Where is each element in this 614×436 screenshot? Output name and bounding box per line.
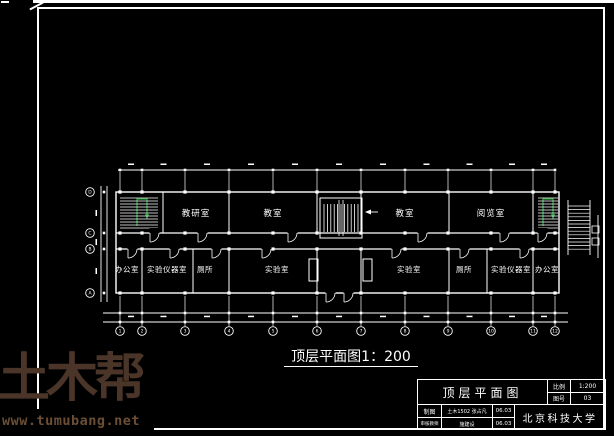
room-labels: 教研室 教室 教室 阅览室 办公室 实验仪器室 厕所 实验室 实验室 厕所 实验…	[115, 208, 559, 274]
sheet-no-value: 03	[571, 393, 604, 405]
grid-bubble-label: D	[88, 190, 92, 196]
grid-bubble-label: 11	[530, 329, 536, 335]
title-block: 顶层平面图 比例 1:200 图号 03 制图 土木1502 张占凡 06.03…	[417, 379, 606, 430]
drafter-label: 制图	[418, 405, 442, 418]
checker-date: 06.03	[493, 418, 515, 430]
checker-value: 施建设	[442, 418, 493, 430]
direction-arrow-icon	[365, 210, 378, 215]
grid-bubble-label: 8	[404, 329, 407, 335]
grid-bubble-label: 9	[447, 329, 450, 335]
room-label-top-4: 阅览室	[477, 208, 506, 219]
plan-caption: 顶层平面图1：200	[284, 349, 418, 367]
grid-bubble-label: C	[88, 231, 91, 237]
drafter-date: 06.03	[493, 405, 515, 418]
room-label-bottom-1: 办公室	[115, 264, 139, 274]
organization-name: 北京科技大学	[515, 405, 605, 430]
cad-viewport: 123456789101112ABCD 教研室 教室 教室 阅览室 办公室 实验…	[0, 0, 614, 436]
sheet-no-label: 图号	[548, 393, 571, 405]
building-walls	[116, 192, 599, 293]
room-label-top-2: 教室	[263, 208, 282, 219]
grid-bubble-label: 3	[184, 329, 187, 335]
room-label-bottom-5: 实验室	[397, 264, 421, 274]
drafter-value: 土木1502 张占凡	[442, 405, 493, 418]
checker-label: 审核教师	[418, 418, 442, 430]
grid-bubble-label: 7	[360, 329, 363, 335]
grid-bubble-label: 6	[316, 329, 319, 335]
watermark-logo: 土木帮	[0, 351, 142, 407]
room-label-bottom-3: 厕所	[197, 264, 213, 274]
title-block-drawing-title: 顶层平面图	[418, 380, 548, 405]
grid-bubble-label: 12	[552, 329, 558, 335]
room-label-bottom-2: 实验仪器室	[147, 264, 187, 274]
grid-bubble-label: 1	[119, 329, 122, 335]
room-label-bottom-7: 实验仪器室	[491, 264, 531, 274]
room-label-bottom-6: 厕所	[456, 264, 472, 274]
grid-bubble-label: 10	[488, 329, 494, 335]
grid-bubble-label: 2	[141, 329, 144, 335]
grid-bubble-label: 4	[228, 329, 231, 335]
grid-bubble-label: B	[88, 247, 91, 253]
scale-label: 比例	[548, 380, 571, 393]
room-label-bottom-4: 实验室	[265, 264, 289, 274]
room-label-top-1: 教研室	[182, 208, 211, 219]
watermark-url: www.tumubang.net	[2, 409, 154, 436]
scale-value: 1:200	[571, 380, 604, 393]
room-label-top-3: 教室	[395, 208, 414, 219]
room-label-bottom-8: 办公室	[535, 264, 559, 274]
grid-bubble-label: 5	[272, 329, 275, 335]
